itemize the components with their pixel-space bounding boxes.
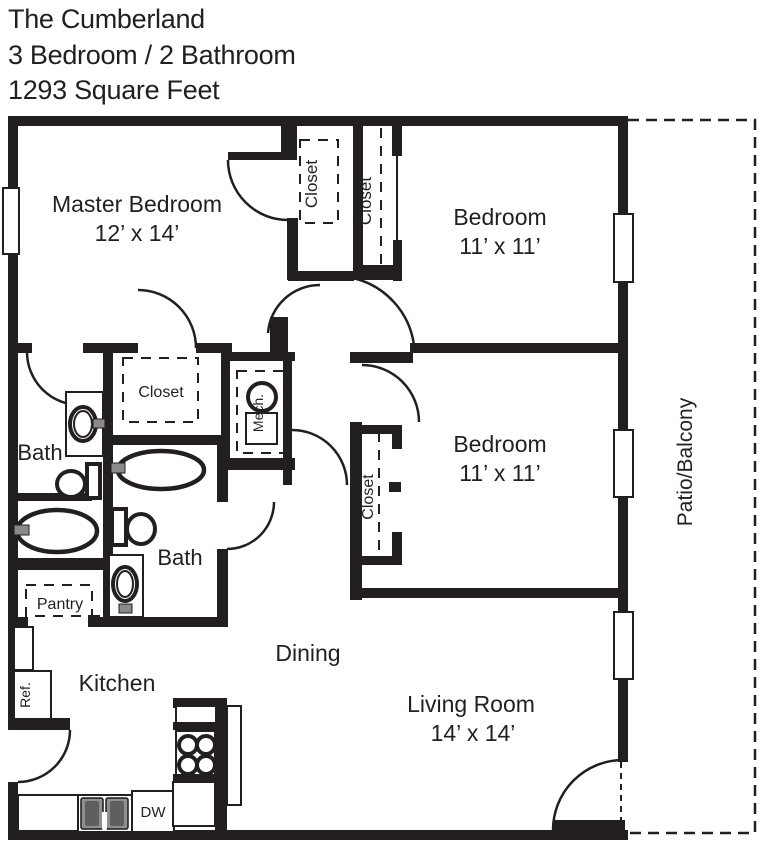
- master-bedroom-door-arc: [228, 160, 288, 220]
- bedroom-middle-dims: 11’ x 11’: [459, 460, 540, 486]
- wall: [281, 116, 297, 156]
- wall: [350, 352, 413, 363]
- faucet-icon: [119, 604, 132, 613]
- stove-base: [173, 782, 215, 826]
- bedroom-top-door-arc: [353, 278, 414, 345]
- counter: [18, 795, 78, 831]
- wall: [393, 240, 402, 281]
- bedroom-middle-label: Bedroom: [453, 431, 546, 457]
- dishwasher-label: DW: [141, 804, 167, 821]
- living-room-dims: 14’ x 14’: [431, 720, 516, 746]
- kitchen-label: Kitchen: [79, 670, 156, 696]
- closet-walkin-label: Closet: [302, 160, 321, 208]
- burner-icon: [179, 736, 197, 754]
- burner-icon: [179, 756, 197, 774]
- cabinet: [14, 627, 33, 670]
- patio-label: Patio/Balcony: [674, 397, 697, 526]
- plan-subtitle: 3 Bedroom / 2 Bathroom: [8, 40, 296, 70]
- entry-door-arc: [18, 730, 70, 782]
- sink-divider: [102, 812, 107, 829]
- wall: [270, 317, 288, 355]
- mechanical-label: Mech.: [250, 394, 266, 432]
- master-bedroom-dims: 12’ x 14’: [95, 220, 180, 246]
- burner-icon: [197, 736, 215, 754]
- faucet-icon: [111, 463, 125, 473]
- toilet-bowl-icon: [57, 471, 85, 497]
- bath-master-label: Bath: [17, 440, 62, 465]
- counter: [227, 706, 241, 805]
- floor-plan-page: The Cumberland 3 Bedroom / 2 Bathroom 12…: [0, 0, 762, 844]
- wall: [8, 116, 628, 126]
- dining-label: Dining: [275, 640, 340, 666]
- wall: [392, 425, 402, 449]
- closet-master-label: Closet: [138, 384, 184, 401]
- patio-door-arc: [553, 760, 623, 830]
- window: [614, 214, 633, 282]
- wall: [8, 116, 18, 190]
- burner-icon: [197, 756, 215, 774]
- plan-title: The Cumberland: [8, 4, 205, 34]
- wall: [217, 549, 228, 627]
- bedroom-top-dims: 11’ x 11’: [459, 233, 540, 259]
- toilet-tank-icon: [112, 509, 126, 545]
- wall: [83, 343, 138, 353]
- wall: [8, 343, 32, 353]
- sink-basin-icon: [110, 801, 124, 826]
- refrigerator-label: Ref.: [17, 682, 33, 708]
- wall: [8, 558, 104, 570]
- wall: [410, 343, 628, 353]
- wall: [357, 265, 397, 280]
- window: [3, 188, 19, 254]
- closet-hall-label: Closet: [356, 177, 375, 225]
- bath-hall-door-arc: [227, 502, 274, 549]
- pantry-label: Pantry: [37, 596, 83, 613]
- toilet-tank-icon: [87, 464, 100, 498]
- bedroom-middle-door-arc: [362, 365, 419, 422]
- wall: [618, 280, 628, 432]
- sink-basin-icon: [85, 801, 99, 826]
- master-suite-door-arc: [138, 290, 196, 348]
- bathtub-icon: [118, 451, 204, 489]
- wall: [350, 588, 628, 598]
- stove-panel: [176, 706, 216, 723]
- living-room-label: Living Room: [407, 691, 535, 717]
- wall: [100, 617, 228, 627]
- wall: [392, 116, 402, 156]
- floor-plan-drawing: The Cumberland 3 Bedroom / 2 Bathroom 12…: [0, 0, 762, 844]
- wall: [288, 271, 354, 281]
- master-bedroom-label: Master Bedroom: [52, 191, 222, 217]
- plan-area: 1293 Square Feet: [8, 75, 220, 105]
- faucet-icon: [14, 525, 29, 535]
- toilet-bowl-icon: [127, 514, 155, 544]
- wall: [618, 116, 628, 216]
- wall: [389, 482, 401, 492]
- patio-door-leaf: [553, 820, 625, 831]
- wall: [618, 678, 628, 762]
- wall: [107, 435, 228, 445]
- bath-hall-label: Bath: [157, 545, 202, 570]
- wall: [221, 458, 295, 470]
- window: [614, 612, 633, 679]
- wall: [287, 218, 298, 280]
- wall: [392, 532, 402, 565]
- bedroom-top-label: Bedroom: [453, 204, 546, 230]
- window: [614, 430, 633, 497]
- faucet-icon: [93, 419, 105, 428]
- corridor-door-arc: [292, 430, 347, 485]
- closet-bedroom-label: Closet: [360, 474, 377, 520]
- master-door-leaf: [228, 152, 297, 160]
- wall: [221, 343, 230, 470]
